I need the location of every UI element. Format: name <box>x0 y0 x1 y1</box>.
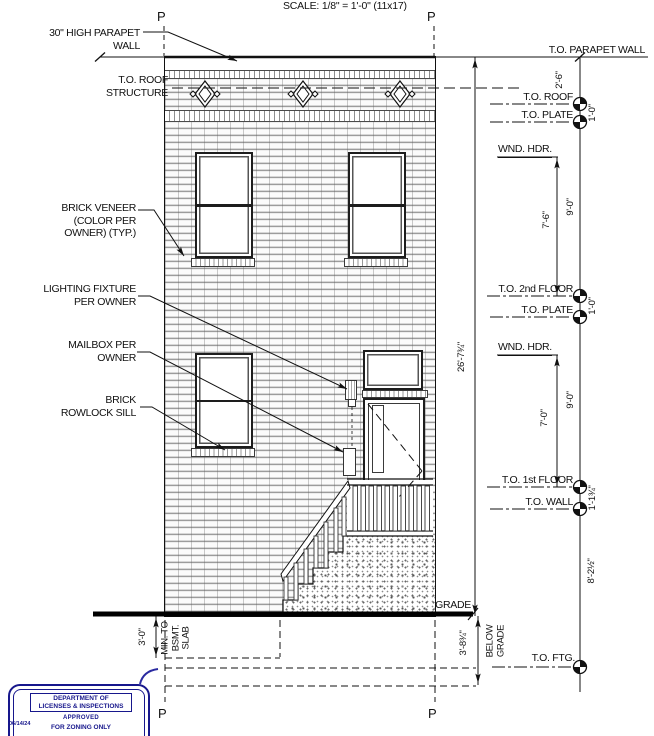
wnd-hdr-upper-label: WND. HDR. <box>498 143 552 158</box>
rowlock-sill-second-floor-left <box>191 258 255 267</box>
rowlock-sill-note: BRICK ROWLOCK SILL <box>61 394 136 419</box>
dim-bsmt-depth: 3'-0" <box>138 628 149 645</box>
soldier-course-lower <box>165 110 435 122</box>
grade-label: GRADE <box>435 599 471 612</box>
rowlock-sill-second-floor-right <box>344 258 408 267</box>
to-wall-label: T.O. WALL <box>525 496 573 509</box>
stamp-date: 06/14/24 <box>9 721 30 727</box>
parapet-cap-band <box>165 57 435 71</box>
roof-structure-note: T.O. ROOF STRUCTURE <box>106 74 168 99</box>
to-parapet-wall-label: T.O. PARAPET WALL <box>549 44 645 57</box>
soldier-course-upper <box>165 70 435 79</box>
dim-1st-floor-to-wall: 1'-1¾" <box>588 485 599 510</box>
first-floor-window <box>195 353 253 448</box>
door-lite <box>372 405 384 473</box>
stamp-zoning-text: FOR ZONING ONLY <box>30 724 132 731</box>
property-line-marker-bottom-left: P <box>158 706 167 721</box>
property-line-marker-top-left: P <box>157 9 166 24</box>
dim-wall-to-footing: 8'-2½" <box>587 558 598 583</box>
bsmt-slab-note: MIN. TO BSMT. SLAB <box>160 621 192 654</box>
to-plate-lower-label: T.O. PLATE <box>521 304 573 317</box>
stamp-approved-text: APPROVED <box>30 715 132 721</box>
below-grade-label: BELOW GRADE <box>486 625 507 658</box>
property-line-marker-bottom-right: P <box>428 706 437 721</box>
brick-veneer-note: BRICK VENEER (COLOR PER OWNER) (TYP.) <box>61 202 136 240</box>
dim-overall-height: 26'-7¾" <box>457 342 468 372</box>
overall-height-dimension <box>472 57 477 616</box>
window-meeting-rail <box>197 400 251 403</box>
to-footing-label: T.O. FTG. <box>532 652 575 665</box>
entry-door <box>363 398 425 498</box>
dim-grade-to-footing: 3'-8¾" <box>459 630 470 655</box>
to-1st-floor-label: T.O. 1st FLOOR <box>502 474 573 487</box>
window-meeting-rail <box>197 204 251 207</box>
lighting-fixture-note: LIGHTING FIXTURE PER OWNER <box>43 283 136 308</box>
door-transom-window <box>363 350 423 390</box>
property-line-marker-top-right: P <box>427 9 436 24</box>
wnd-hdr-lower-label: WND. HDR. <box>498 341 552 356</box>
elevation-drawing-sheet: SCALE: 1/8" = 1'-0" (11x17) P P P P <box>0 0 654 736</box>
rowlock-sill-first-floor <box>191 448 255 457</box>
window-header-dimensions <box>497 157 560 487</box>
dim-parapet-height: 2'-6" <box>555 71 566 88</box>
datum-lines-right <box>487 104 573 667</box>
mailbox <box>343 448 356 476</box>
main-dimension-line <box>574 57 587 692</box>
lighting-fixture <box>345 380 357 400</box>
to-plate-upper-label: T.O. PLATE <box>521 109 573 122</box>
dim-wnd-hdr-to-1st-floor: 7'-0" <box>540 409 551 426</box>
dim-2nd-floor-to-plate: 1'-0" <box>588 297 599 314</box>
below-grade-dimension <box>475 616 480 685</box>
parapet-wall-note: 30" HIGH PARAPET WALL <box>49 27 140 52</box>
lighting-fixture-bracket <box>348 399 356 407</box>
dim-roof-to-plate: 1'-0" <box>588 104 599 121</box>
to-roof-label: T.O. ROOF <box>523 91 573 104</box>
stamp-arc <box>140 669 158 684</box>
dim-wnd-hdr-to-2nd-floor: 7'-6" <box>542 211 553 228</box>
scale-note: SCALE: 1/8" = 1'-0" (11x17) <box>283 0 407 12</box>
basement-slab-dimension <box>153 616 158 658</box>
to-2nd-floor-label: T.O. 2nd FLOOR <box>498 283 573 296</box>
dim-plate-to-2nd-floor: 9'-0" <box>566 198 577 215</box>
property-line-dashes-top <box>164 26 434 56</box>
second-floor-window-right <box>348 152 406 258</box>
mailbox-note: MAILBOX PER OWNER <box>68 339 136 364</box>
stamp-department-box: DEPARTMENT OF LICENSES & INSPECTIONS <box>30 693 132 712</box>
ornament-brick-band <box>165 79 435 110</box>
window-meeting-rail <box>350 204 404 207</box>
rowlock-course-below-transom <box>362 390 428 398</box>
second-floor-window-left <box>195 152 253 258</box>
below-grade-dashes <box>165 620 476 702</box>
dim-plate-to-1st-floor: 9'-0" <box>566 391 577 408</box>
